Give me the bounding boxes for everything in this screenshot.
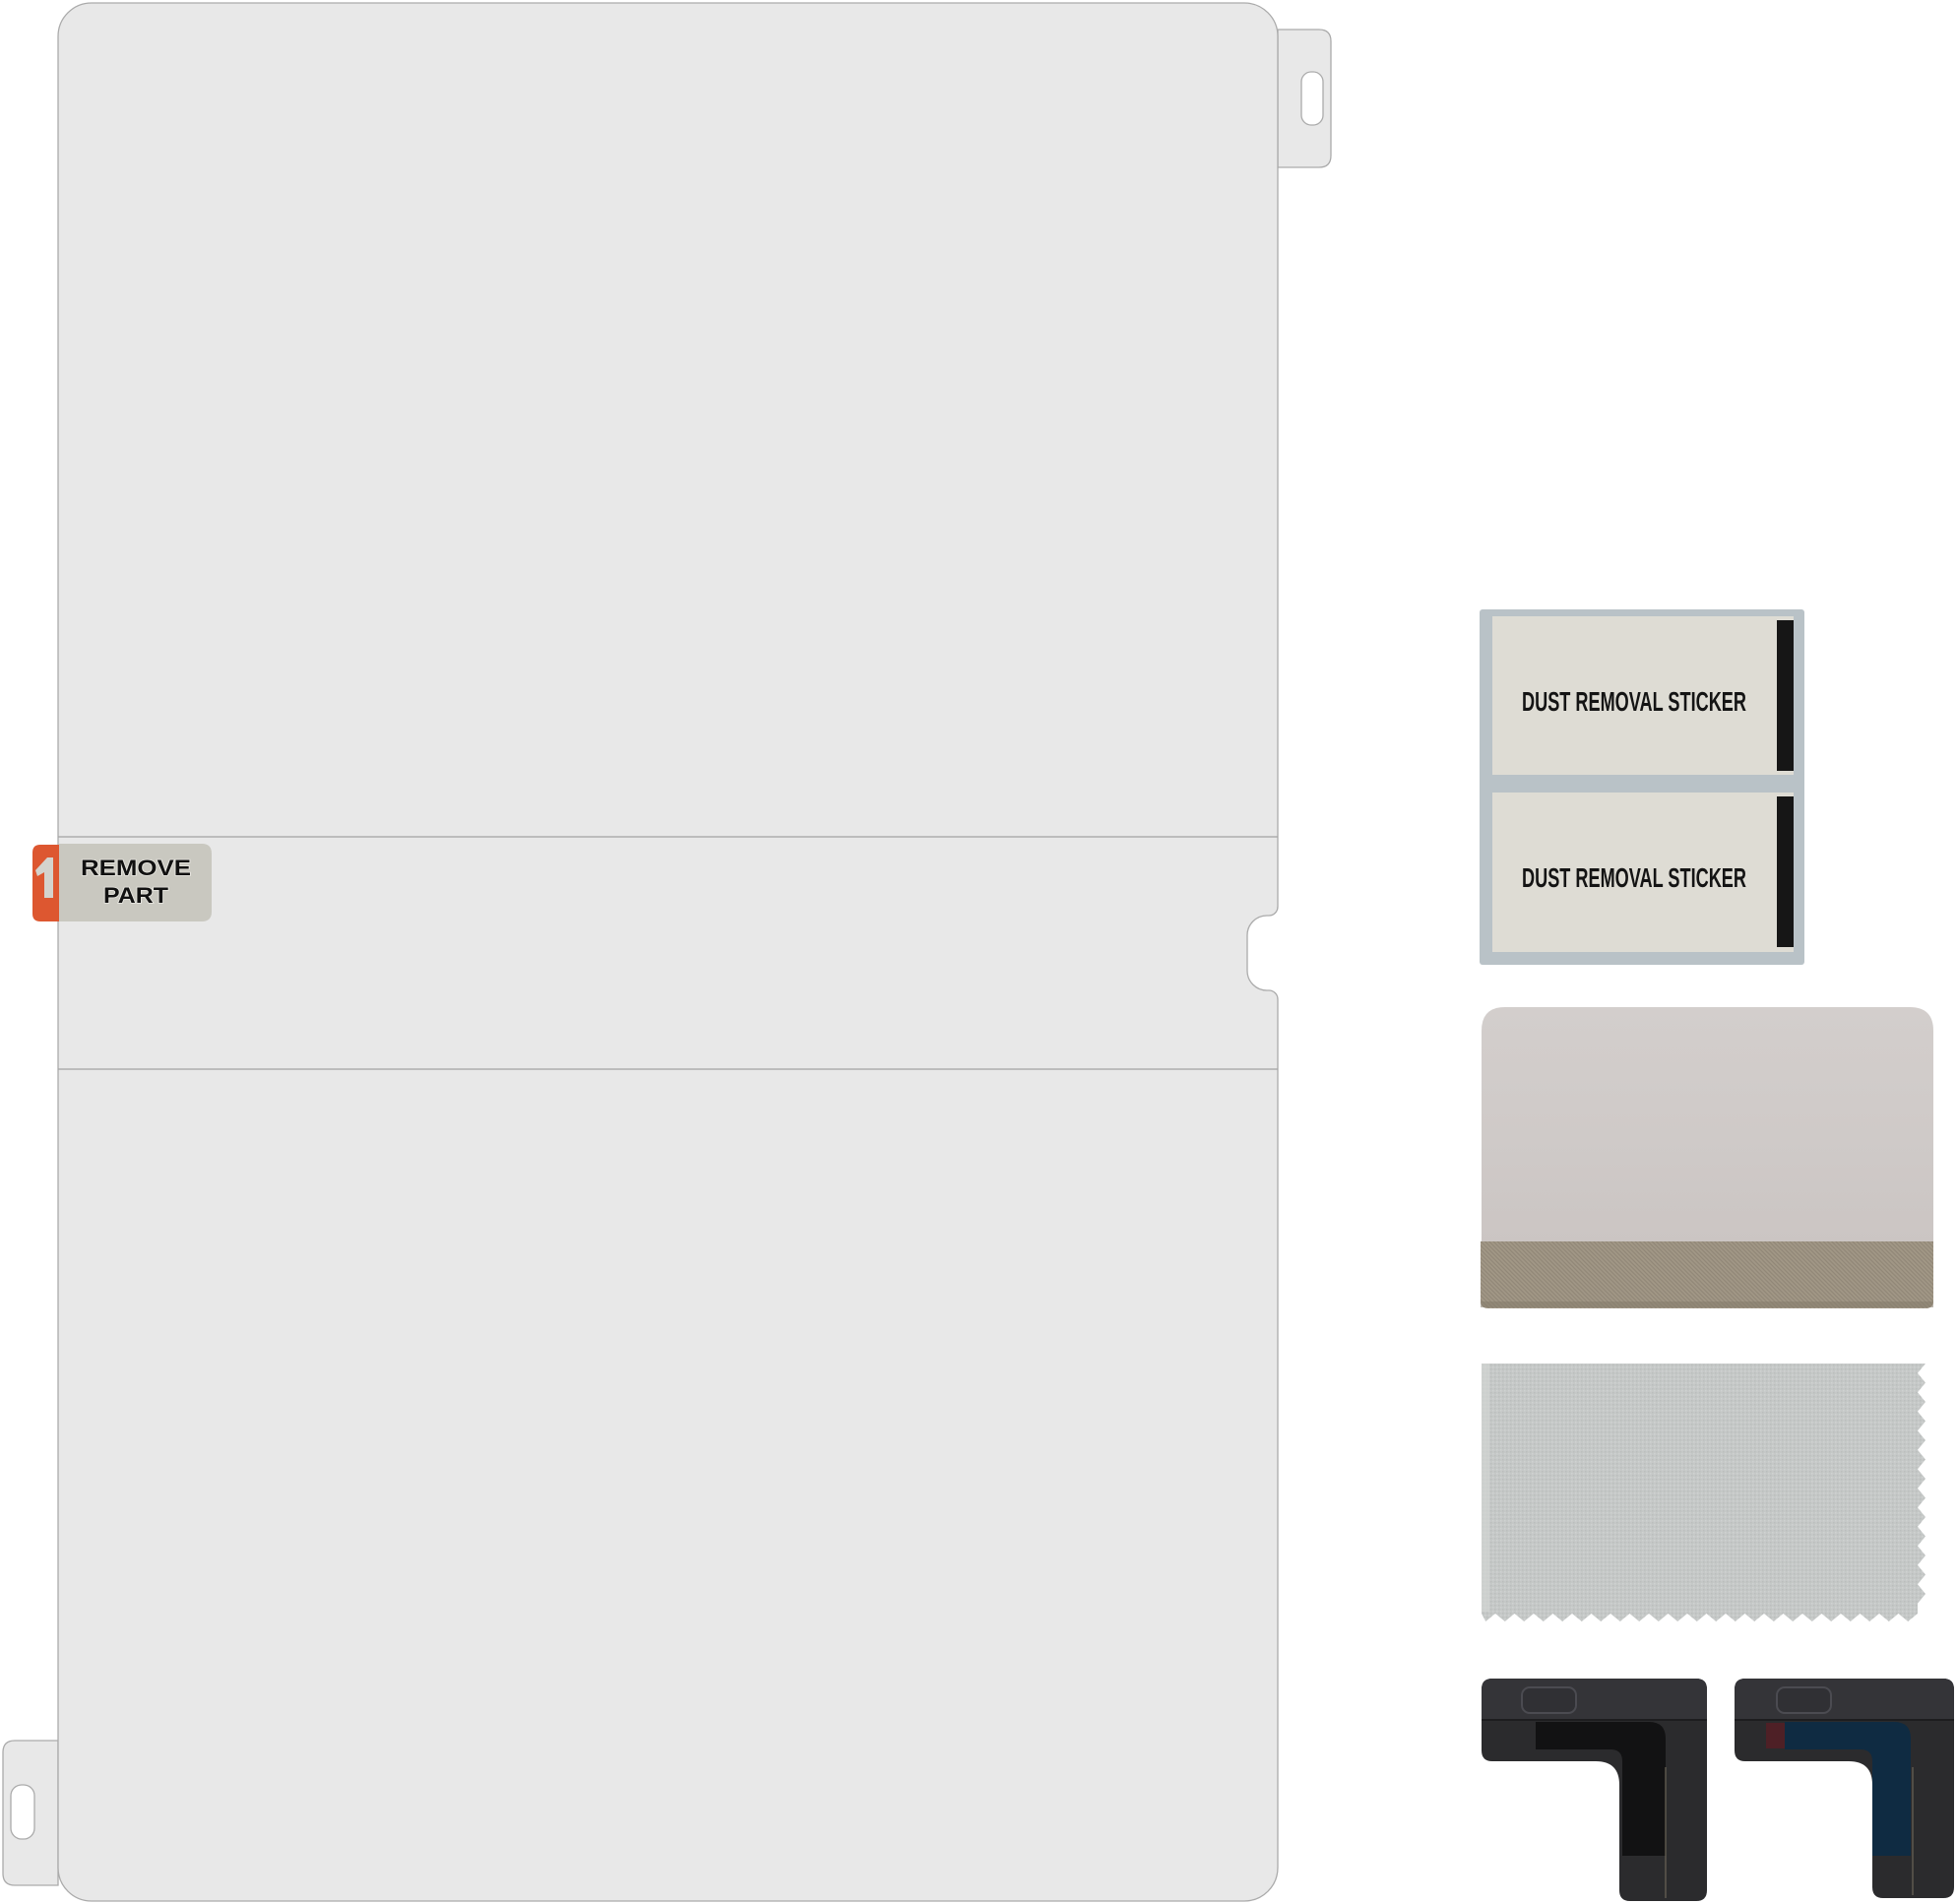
svg-text:DUST REMOVAL STICKER: DUST REMOVAL STICKER bbox=[1522, 686, 1746, 717]
svg-text:PART: PART bbox=[103, 883, 169, 908]
svg-text:DUST REMOVAL STICKER: DUST REMOVAL STICKER bbox=[1522, 862, 1746, 893]
svg-text:REMOVE: REMOVE bbox=[81, 856, 191, 880]
